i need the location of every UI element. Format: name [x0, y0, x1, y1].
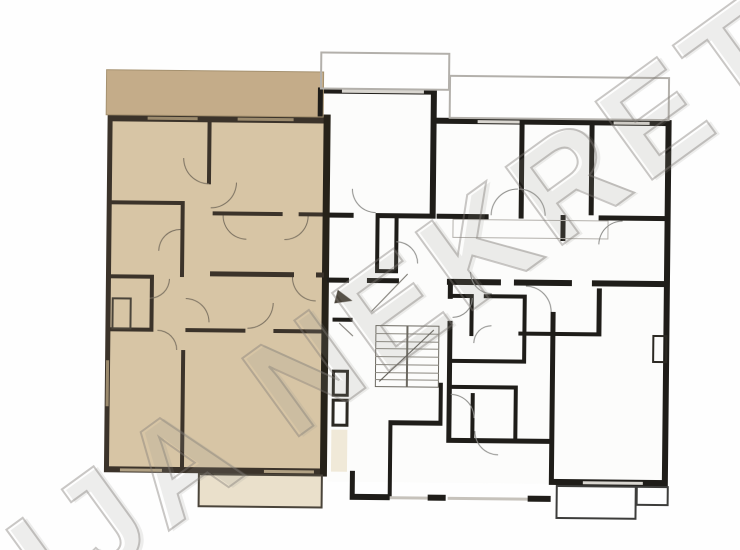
wall-segment [518, 332, 600, 337]
balcony-step-outline [636, 486, 669, 506]
wall-segment [484, 294, 527, 298]
floor-plan-image: PREMIJA NEKRETNINE [0, 0, 740, 550]
wall-segment [350, 494, 390, 500]
wall-segment [106, 274, 154, 279]
bay-window-outline [111, 297, 131, 329]
building-fill [327, 117, 672, 486]
wall-segment [185, 328, 245, 333]
wall-segment [327, 278, 349, 283]
plan-layer [0, 0, 740, 550]
elevator-shaft-2 [331, 399, 348, 427]
wall-segment [596, 288, 602, 336]
window-opening [448, 497, 528, 501]
wall-segment [367, 278, 399, 283]
wall-segment [375, 269, 398, 273]
wall-segment [316, 272, 324, 277]
wall-segment [388, 420, 393, 496]
wall-segment [513, 386, 518, 443]
terrace-outline [106, 69, 324, 117]
wall-segment [330, 213, 354, 218]
window-opening [264, 470, 314, 474]
window-opening [390, 496, 428, 499]
wall-segment [599, 215, 669, 221]
window-opening [148, 117, 198, 121]
balcony-bottom-right-outline [555, 485, 636, 520]
window-opening [120, 468, 162, 471]
wall-segment [333, 318, 353, 322]
wall-segment [378, 213, 432, 219]
window-opening [106, 360, 109, 406]
hall-closet-outline [452, 219, 608, 240]
window-opening [238, 118, 294, 122]
niche-fill [331, 430, 347, 472]
wall-segment [514, 280, 572, 287]
wall-segment [428, 495, 446, 501]
wall-segment [589, 119, 595, 215]
wall-segment [350, 471, 355, 500]
apartment-fill [104, 115, 329, 472]
balcony-top-middle-outline [320, 51, 450, 90]
balcony-top-right-outline [449, 75, 670, 121]
wall-segment [375, 213, 380, 273]
wall-segment [107, 200, 183, 205]
duct-shaft [652, 335, 667, 363]
wall-segment [592, 280, 670, 287]
window-opening [478, 120, 520, 123]
wall-segment [449, 359, 526, 364]
wall-segment [210, 271, 294, 277]
window-opening [614, 122, 650, 125]
wall-segment [273, 329, 321, 334]
wall-segment [438, 383, 442, 425]
wall-segment [447, 385, 518, 390]
elevator-shaft-1 [332, 370, 349, 397]
wall-segment [390, 420, 442, 426]
wall-segment [528, 496, 551, 502]
window-opening [583, 481, 643, 485]
balcony-beige-outline [198, 473, 323, 508]
wall-segment [180, 201, 185, 277]
